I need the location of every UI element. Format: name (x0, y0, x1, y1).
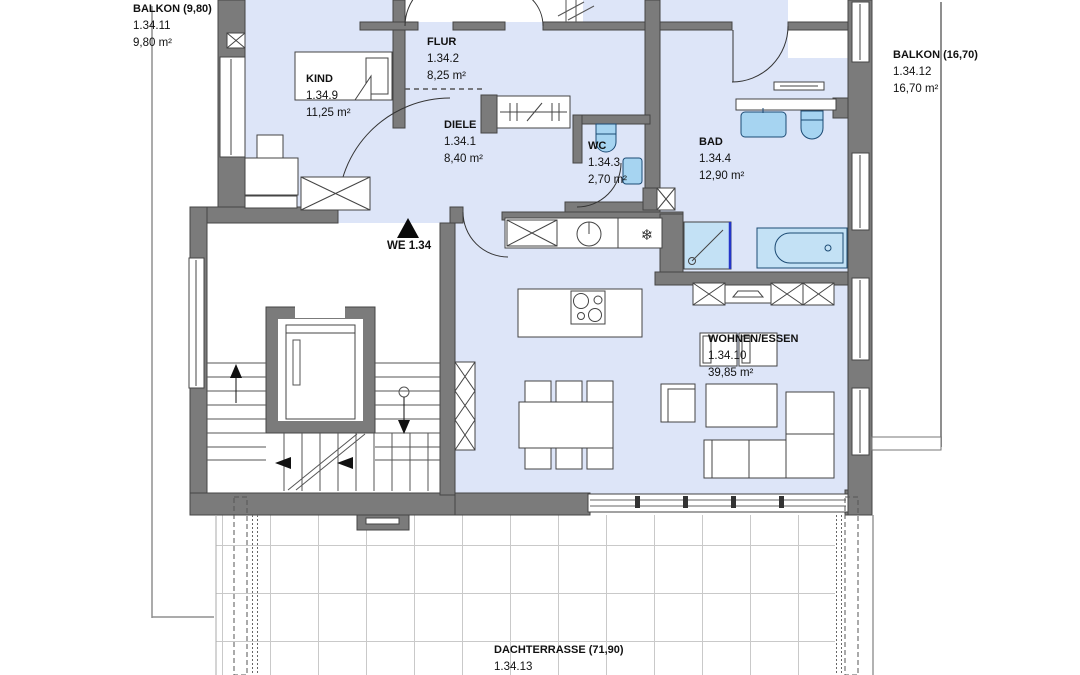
room-name: KIND (306, 71, 351, 88)
room-name: WOHNEN/ESSEN (708, 331, 798, 348)
room-name: BALKON (16,70) (893, 47, 978, 64)
room-id: 1.34.4 (699, 151, 744, 168)
room-name: WC (588, 138, 627, 155)
room-name: BAD (699, 134, 744, 151)
room-name: DACHTERRASSE (71,90) (494, 642, 624, 659)
room-id: 1.34.10 (708, 348, 798, 365)
room-id: 1.34.11 (133, 18, 212, 35)
room-id: 1.34.3 (588, 155, 627, 172)
room-id: 1.34.13 (494, 659, 624, 675)
terrace-sliding-door (588, 494, 848, 512)
room-area: 8,25 m² (427, 68, 466, 85)
svg-text:❄: ❄ (641, 226, 654, 244)
room-name: FLUR (427, 34, 466, 51)
room-area: 16,70 m² (893, 81, 978, 98)
room-area: 8,40 m² (444, 151, 483, 168)
room-label-diele: DIELE 1.34.1 8,40 m² (444, 117, 483, 168)
room-area: 39,85 m² (708, 365, 798, 382)
room-label-wc: WC 1.34.3 2,70 m² (588, 138, 627, 189)
room-label-balkon-left: BALKON (9,80) 1.34.11 9,80 m² (133, 1, 212, 52)
room-name: BALKON (9,80) (133, 1, 212, 18)
floor-plan: ❄ (0, 0, 1080, 675)
room-area: 9,80 m² (133, 35, 212, 52)
room-label-balkon-right: BALKON (16,70) 1.34.12 16,70 m² (893, 47, 978, 98)
room-area: 12,90 m² (699, 168, 744, 185)
diele-wardrobe (497, 96, 570, 128)
room-id: 1.34.12 (893, 64, 978, 81)
room-id: 1.34.2 (427, 51, 466, 68)
room-label-kind: KIND 1.34.9 11,25 m² (306, 71, 351, 122)
room-label-flur: FLUR 1.34.2 8,25 m² (427, 34, 466, 85)
room-id: 1.34.1 (444, 134, 483, 151)
elevator (278, 305, 363, 421)
floor-plan-drawing: ❄ (0, 0, 1080, 675)
unit-entrance-label: WE 1.34 (387, 240, 431, 252)
room-label-dachterrasse: DACHTERRASSE (71,90) 1.34.13 (494, 642, 624, 675)
room-label-bad: BAD 1.34.4 12,90 m² (699, 134, 744, 185)
room-label-wohnen-essen: WOHNEN/ESSEN 1.34.10 39,85 m² (708, 331, 798, 382)
room-area: 2,70 m² (588, 172, 627, 189)
room-area: 11,25 m² (306, 105, 351, 122)
room-id: 1.34.9 (306, 88, 351, 105)
room-name: DIELE (444, 117, 483, 134)
